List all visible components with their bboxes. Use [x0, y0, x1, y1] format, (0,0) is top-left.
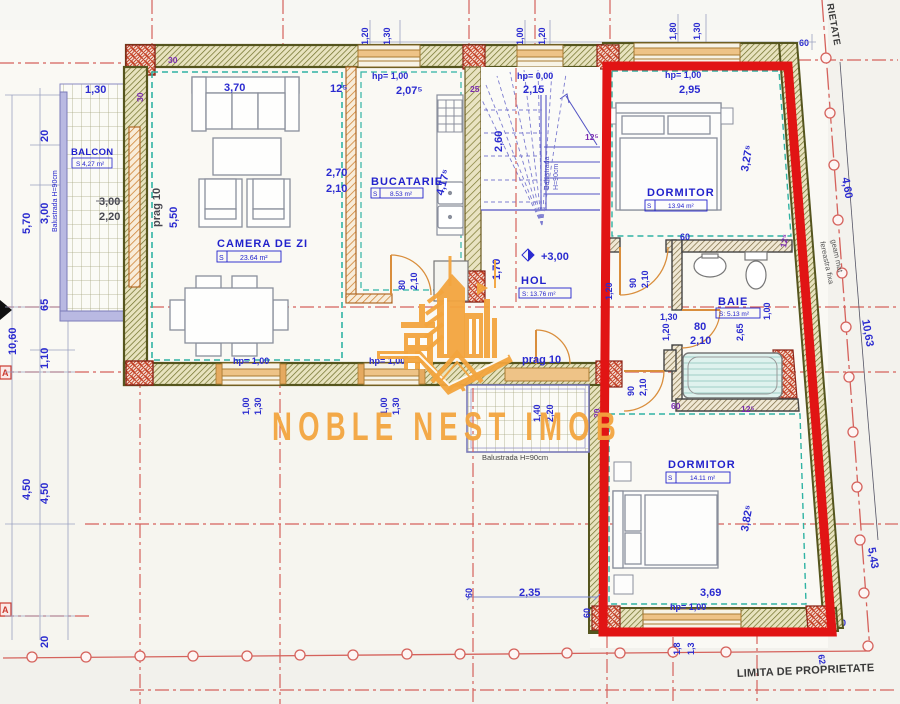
svg-text:S: S — [219, 255, 224, 262]
svg-text:13.94 m²: 13.94 m² — [668, 203, 694, 210]
svg-text:1,30: 1,30 — [660, 312, 678, 322]
svg-text:1,8: 1,8 — [672, 642, 682, 655]
svg-text:BAIE: BAIE — [718, 296, 748, 308]
svg-text:hp= 1,00: hp= 1,00 — [665, 70, 701, 80]
svg-text:2,10: 2,10 — [690, 335, 711, 347]
svg-text:5,70: 5,70 — [21, 213, 33, 234]
svg-text:2,95: 2,95 — [679, 84, 700, 96]
svg-text:60: 60 — [582, 608, 592, 618]
svg-text:prag 10: prag 10 — [151, 188, 163, 227]
svg-text:2,10: 2,10 — [326, 183, 347, 195]
svg-text:Balustrada: Balustrada — [544, 156, 551, 190]
svg-text:H=90cm: H=90cm — [553, 164, 560, 190]
svg-text:90: 90 — [628, 278, 638, 288]
svg-text:+3,00: +3,00 — [541, 251, 569, 263]
svg-text:80: 80 — [397, 280, 407, 290]
svg-text:4,50: 4,50 — [21, 479, 33, 500]
svg-text:10,60: 10,60 — [7, 327, 19, 355]
svg-text:2,70: 2,70 — [326, 167, 347, 179]
svg-text:S: 5.13 m²: S: 5.13 m² — [719, 311, 750, 318]
svg-text:14.11 m²: 14.11 m² — [690, 475, 716, 482]
svg-text:2,15: 2,15 — [523, 84, 544, 96]
svg-text:hp= 1,00: hp= 1,00 — [233, 356, 269, 366]
svg-text:2,07⁵: 2,07⁵ — [396, 85, 423, 97]
svg-text:4,50: 4,50 — [39, 483, 51, 504]
svg-text:30: 30 — [135, 92, 145, 102]
svg-text:1,30: 1,30 — [382, 27, 392, 45]
svg-text:prag 10: prag 10 — [522, 354, 561, 366]
svg-text:80: 80 — [694, 321, 706, 333]
svg-text:1,70: 1,70 — [491, 259, 503, 280]
svg-text:62: 62 — [816, 654, 828, 666]
svg-text:25: 25 — [470, 84, 480, 94]
svg-text:2,20: 2,20 — [99, 211, 120, 223]
svg-text:1,20: 1,20 — [661, 323, 671, 341]
svg-text:90: 90 — [626, 386, 636, 396]
svg-text:12⁵: 12⁵ — [741, 404, 754, 414]
svg-text:5,50: 5,50 — [168, 207, 180, 228]
svg-text:12⁵: 12⁵ — [585, 132, 598, 142]
svg-text:hp= 1,00: hp= 1,00 — [670, 602, 706, 612]
svg-text:3,00: 3,00 — [39, 203, 51, 224]
svg-text:12⁵: 12⁵ — [330, 83, 347, 95]
svg-text:1,30: 1,30 — [253, 397, 263, 415]
svg-text:1,00: 1,00 — [515, 27, 525, 45]
svg-text:HOL: HOL — [521, 275, 547, 287]
svg-text:1,80: 1,80 — [668, 22, 678, 40]
svg-text:3,70: 3,70 — [224, 82, 245, 94]
svg-text:hp= 0,00: hp= 0,00 — [517, 71, 553, 81]
svg-text:60: 60 — [680, 232, 690, 242]
svg-text:hp= 1,00: hp= 1,00 — [372, 71, 408, 81]
svg-text:Balustrada H=90cm: Balustrada H=90cm — [482, 453, 548, 462]
svg-text:DORMITOR: DORMITOR — [647, 187, 715, 199]
svg-text:2,10: 2,10 — [640, 270, 650, 288]
svg-text:60: 60 — [671, 401, 681, 411]
svg-text:65: 65 — [39, 299, 51, 311]
svg-text:1,3: 1,3 — [686, 642, 696, 655]
svg-text:2,10: 2,10 — [638, 378, 648, 396]
svg-text:30: 30 — [168, 55, 178, 65]
svg-text:60: 60 — [799, 38, 809, 48]
svg-text:1,20: 1,20 — [360, 27, 370, 45]
svg-text:2,10: 2,10 — [409, 272, 419, 290]
svg-text:2,65: 2,65 — [735, 323, 745, 341]
svg-text:3,00: 3,00 — [99, 196, 120, 208]
svg-text:1,20: 1,20 — [537, 27, 547, 45]
svg-text:A: A — [2, 605, 9, 615]
svg-text:DORMITOR: DORMITOR — [668, 459, 736, 471]
svg-text:1,10: 1,10 — [39, 348, 51, 369]
svg-text:1,00: 1,00 — [762, 302, 772, 320]
svg-text:BALCON: BALCON — [71, 147, 113, 158]
svg-text:A: A — [2, 368, 9, 378]
svg-text:1,20: 1,20 — [604, 282, 614, 300]
svg-text:S 4,27 m²: S 4,27 m² — [76, 161, 105, 168]
svg-text:S: S — [647, 203, 652, 210]
svg-text:S: S — [668, 475, 673, 482]
svg-text:2,60: 2,60 — [493, 131, 505, 152]
svg-text:20: 20 — [39, 636, 51, 648]
svg-text:S: S — [373, 191, 378, 198]
svg-text:1,00: 1,00 — [241, 397, 251, 415]
svg-text:NOBLE NEST IMOB: NOBLE NEST IMOB — [272, 405, 622, 449]
svg-text:8.53 m²: 8.53 m² — [390, 191, 413, 198]
svg-text:23.64 m²: 23.64 m² — [240, 255, 268, 262]
svg-text:3,69: 3,69 — [700, 587, 721, 599]
svg-text:1,30: 1,30 — [692, 22, 702, 40]
svg-text:1,30: 1,30 — [85, 84, 106, 96]
svg-text:Balustrada H=90cm: Balustrada H=90cm — [52, 170, 59, 232]
svg-text:20: 20 — [39, 130, 51, 142]
svg-text:CAMERA DE ZI: CAMERA DE ZI — [217, 238, 308, 250]
svg-text:S: 13.76 m²: S: 13.76 m² — [522, 291, 556, 298]
svg-text:BUCATARIE: BUCATARIE — [371, 176, 443, 188]
